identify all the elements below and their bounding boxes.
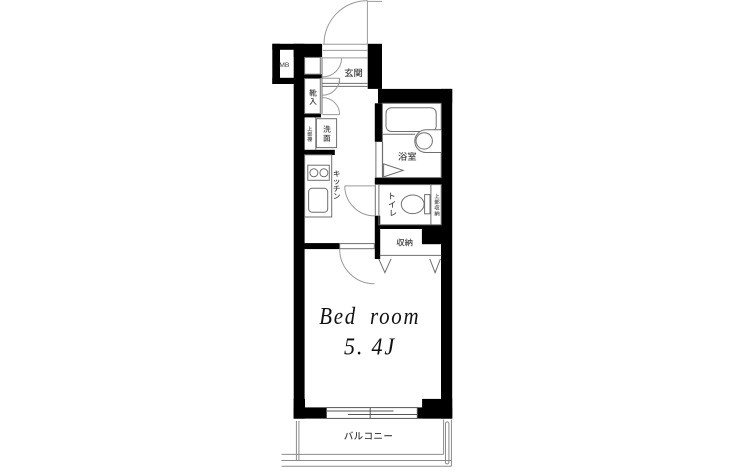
svg-text:5. 4J: 5. 4J [344, 335, 396, 361]
svg-text:Bed room: Bed room [319, 304, 420, 330]
svg-text:MB: MB [279, 62, 290, 69]
